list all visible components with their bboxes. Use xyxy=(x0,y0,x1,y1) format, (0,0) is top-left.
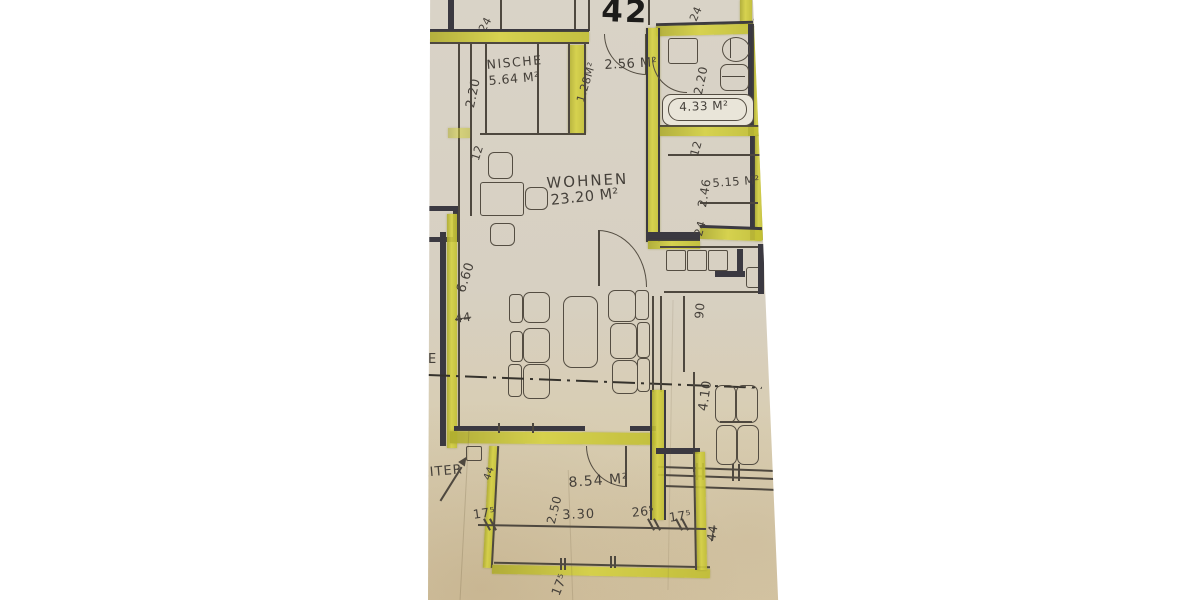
wall-living-bottom xyxy=(454,426,585,431)
dim-330-balcony: 3.30 xyxy=(562,507,595,523)
dim-220-bath: 2.20 xyxy=(691,65,711,96)
room-area-balcony: 8.54 M² xyxy=(568,471,629,491)
room-line xyxy=(652,296,654,392)
wall-smudge xyxy=(448,128,470,138)
wall-living-bottom-highlight xyxy=(450,431,656,445)
wall-top-outer-highlight xyxy=(428,32,589,42)
toilet-bowl xyxy=(722,37,750,62)
balcony-rail-tick xyxy=(614,556,616,568)
paper-crease xyxy=(667,300,673,590)
page: 42 24 24 24 xyxy=(0,0,1200,600)
chair-back xyxy=(637,358,650,392)
balcony-rail-tick xyxy=(610,556,612,568)
balcony-rail-tick xyxy=(564,558,566,570)
wall-balcony-right-highlight xyxy=(652,390,664,520)
chair xyxy=(488,152,513,179)
side-table xyxy=(480,182,524,216)
room-area-nische: 5.64 M² xyxy=(488,69,540,88)
dim-410-room: 4.10 xyxy=(696,379,715,412)
chair xyxy=(525,187,548,210)
wall-below-tub-highlight xyxy=(660,127,760,136)
wall-left-lower xyxy=(440,232,446,446)
wall-side-room-right-highlight xyxy=(755,136,763,240)
kitchen-cabinet xyxy=(708,250,728,271)
dim-90-kitchen: 90 xyxy=(692,302,708,320)
chair-back xyxy=(510,331,523,362)
window-tick xyxy=(498,423,500,433)
wall-top-outer-inner-line xyxy=(428,42,589,44)
armchair xyxy=(737,425,759,465)
kitchen-cabinet xyxy=(687,250,707,271)
chair xyxy=(608,290,636,322)
wall-bath-right-highlight xyxy=(754,24,760,136)
hall-door-arc xyxy=(598,230,647,287)
wall-balcony-right-edge xyxy=(650,390,652,520)
rail-tick xyxy=(732,464,734,481)
nische-bottom-line xyxy=(480,133,586,135)
rail-tick xyxy=(738,464,740,481)
dim-175-right: 17⁵ xyxy=(668,507,692,525)
chair xyxy=(610,323,637,359)
dim-24-bath-top: 24 xyxy=(687,4,705,23)
chair-back xyxy=(508,364,522,397)
armchair-join-line xyxy=(720,421,752,423)
wall-stub xyxy=(588,0,590,31)
armchair xyxy=(715,385,736,423)
chair xyxy=(490,223,515,246)
wall-left-lower-highlight xyxy=(447,214,457,448)
chair-back xyxy=(509,294,523,323)
apartment-number: 42 xyxy=(601,0,649,31)
bidet-line xyxy=(722,76,745,77)
chair xyxy=(523,292,550,323)
wall-stub xyxy=(448,0,454,32)
kitchen-cabinet xyxy=(666,250,686,271)
floorplan-photo: 42 24 24 24 xyxy=(428,0,782,600)
dim-220-nische: 2.20 xyxy=(462,77,483,109)
dining-table xyxy=(563,296,598,368)
dim-265-right: 26⁵ xyxy=(631,503,655,520)
armchair xyxy=(736,385,758,423)
balcony-right-highlight xyxy=(695,452,707,570)
kitchen-right-wall xyxy=(758,244,764,294)
terrace-rail xyxy=(658,474,780,480)
chair xyxy=(612,360,638,394)
kitchen-dark-wall xyxy=(737,249,743,274)
wall-corner-kitchen-highlight xyxy=(648,241,700,249)
terrace-rail xyxy=(664,485,780,491)
wall-left-upper-line xyxy=(470,44,472,216)
side-room-top-line xyxy=(668,154,760,156)
wall-stub xyxy=(500,0,502,32)
dim-line xyxy=(478,524,706,529)
kitchen-top-line xyxy=(660,246,760,248)
chair-back xyxy=(637,322,650,358)
hall-door-leaf xyxy=(598,230,600,286)
terrace-rail xyxy=(658,466,780,472)
room-line xyxy=(683,296,685,372)
chair xyxy=(523,364,550,399)
armchair xyxy=(716,425,737,465)
dim-44-bottom: 44 xyxy=(704,524,721,542)
wall-stub xyxy=(574,0,576,31)
chair-back xyxy=(635,290,649,320)
kitchen-counter-line xyxy=(664,291,762,293)
window-tick xyxy=(532,423,534,433)
bidet xyxy=(720,64,749,91)
toilet-line xyxy=(730,39,731,58)
wall-balcony-right-edge xyxy=(664,390,666,520)
edge-letter: E xyxy=(428,352,437,367)
chair xyxy=(523,328,550,363)
balcony-rail-tick xyxy=(560,558,562,570)
room-line xyxy=(660,296,662,392)
nische-left-line xyxy=(485,42,487,134)
room-area-entry: 2.56 M² xyxy=(604,55,658,73)
dim-175-left: 17⁵ xyxy=(472,504,496,522)
wall-top-bath-highlight xyxy=(656,24,753,37)
dim-175-bottom: 17⁵ xyxy=(548,571,570,597)
room-area-bath: 4.33 M² xyxy=(679,98,729,114)
closet-wall-edge xyxy=(568,44,570,134)
dim-44-living: 44 xyxy=(454,310,472,326)
dim-246-side: 2.46 xyxy=(695,178,714,209)
